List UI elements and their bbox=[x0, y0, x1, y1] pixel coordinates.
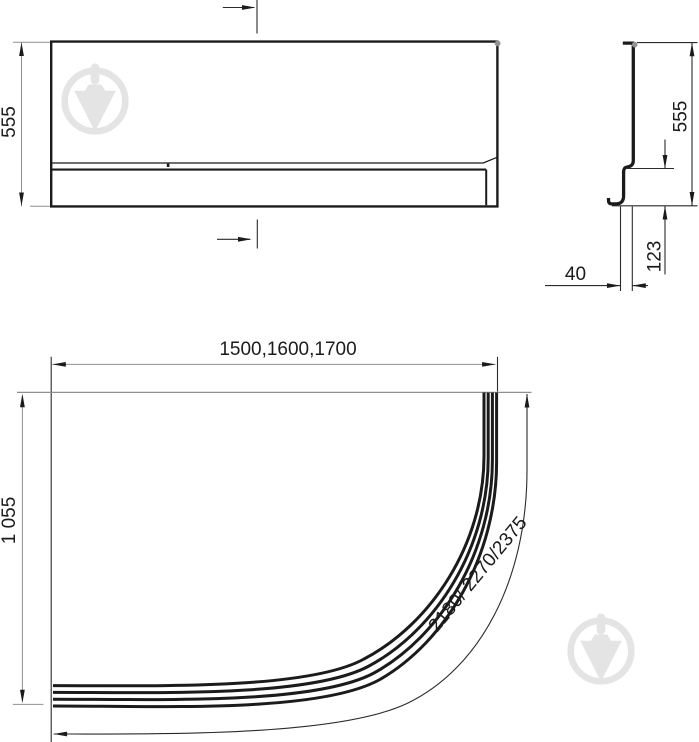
front-panel-groove-line bbox=[51, 157, 497, 163]
side-profile-outline bbox=[609, 43, 634, 204]
trowel-blade bbox=[580, 635, 622, 680]
trowel-watermark-icon bbox=[571, 614, 632, 682]
dim-arrow-left bbox=[632, 283, 646, 288]
corner-dot bbox=[632, 42, 638, 48]
dim-arrow-down bbox=[20, 690, 25, 704]
clip-mark bbox=[167, 164, 170, 167]
trowel-blade bbox=[74, 85, 116, 130]
trowel-handle bbox=[91, 64, 100, 85]
dim-arrow-up bbox=[20, 394, 25, 408]
dim-arrow-left bbox=[54, 732, 68, 737]
technical-drawing-canvas: 555 555 123 40 1500,1600,1700 bbox=[0, 0, 699, 742]
trowel-watermark-icon bbox=[65, 64, 126, 132]
panel-curve bbox=[53, 393, 492, 700]
dim-arrow-right bbox=[607, 283, 621, 288]
dim-arrow-right bbox=[482, 362, 496, 367]
plan-length-dim-label: 1500,1600,1700 bbox=[219, 339, 356, 360]
dim-arrow-up bbox=[525, 394, 530, 408]
plan-width-dim-label: 1 055 bbox=[0, 497, 20, 545]
foot-depth-dim-label: 40 bbox=[565, 264, 586, 285]
dim-arrow-up bbox=[690, 43, 695, 57]
panel-curve bbox=[53, 393, 484, 686]
front-height-dim-label: 555 bbox=[0, 106, 20, 138]
plan-view: 1500,1600,1700 1 055 2180/ 2270/2375 bbox=[0, 339, 532, 742]
dim-arrow-up bbox=[663, 206, 668, 220]
trowel-handle bbox=[597, 614, 606, 635]
plinth-height-dim-label: 123 bbox=[645, 241, 666, 273]
dim-arrow-down bbox=[690, 192, 695, 206]
dim-arrow-up bbox=[19, 43, 24, 57]
technical-drawing-page: 555 555 123 40 1500,1600,1700 bbox=[0, 0, 699, 742]
panel-curve bbox=[53, 393, 497, 707]
side-height-dim-label: 555 bbox=[671, 101, 692, 133]
corner-dot bbox=[495, 41, 501, 47]
side-profile-view: 555 123 40 bbox=[545, 42, 698, 291]
center-mark-arrow bbox=[242, 5, 256, 10]
dim-arrow-left bbox=[52, 362, 66, 367]
dim-arrow-down bbox=[663, 155, 668, 169]
center-mark-arrow bbox=[238, 237, 252, 242]
dim-arrow-down bbox=[19, 193, 24, 207]
